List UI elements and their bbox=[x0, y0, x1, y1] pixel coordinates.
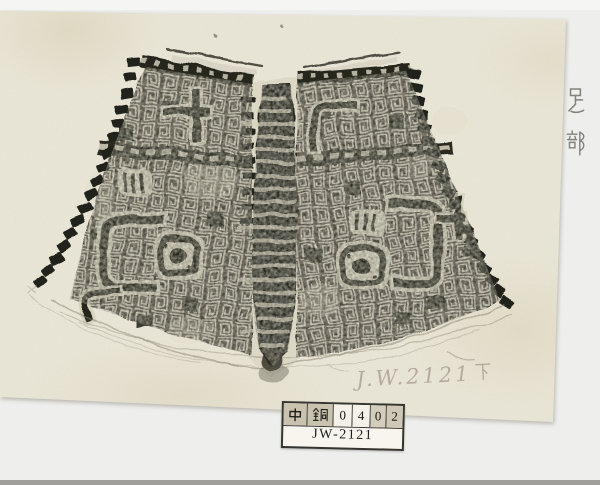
label-cell-digit: 0 bbox=[333, 404, 353, 426]
scan-bottom-strip bbox=[0, 480, 600, 485]
label-cell-digit: 0 bbox=[370, 405, 387, 427]
bu-character bbox=[564, 129, 588, 159]
label-cell-tong bbox=[307, 404, 334, 427]
ink-smudge bbox=[259, 363, 289, 381]
tong-character bbox=[311, 407, 328, 423]
zhong-character bbox=[287, 407, 302, 422]
catalog-label-row1: 0 4 0 2 bbox=[283, 403, 403, 429]
handwritten-side-note bbox=[564, 86, 590, 159]
label-cell-digit: 4 bbox=[352, 405, 371, 427]
scanned-rubbing-sheet: J.W.2121 0 4 0 2 JW-2121 bbox=[0, 0, 600, 485]
catalog-label: 0 4 0 2 JW-2121 bbox=[281, 401, 405, 451]
label-code: JW-2121 bbox=[283, 426, 402, 449]
xia-character bbox=[474, 361, 492, 382]
label-cell-zhong bbox=[283, 403, 308, 426]
label-cell-digit: 2 bbox=[386, 406, 403, 428]
zu-character bbox=[564, 86, 588, 116]
